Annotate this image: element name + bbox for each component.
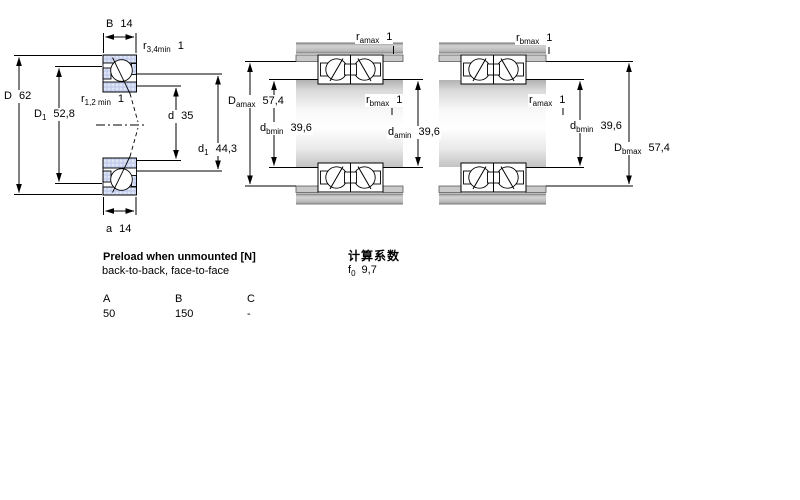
dim-label-damin: damin39,6 [387,126,441,139]
dim-label-D1: D152,8 [33,108,76,121]
f0-factor: f09,7 [347,264,378,277]
bearing-pair-bottom [461,163,526,192]
dim-label-rbmax-right: rbmax1 [515,32,553,45]
bearing-pair-bottom [318,163,383,192]
preload-subtitle: back-to-back, face-to-face [102,265,229,278]
calculation-factors-title: 计算系数 [348,250,400,263]
dim-label-B: B14 [105,18,134,31]
dim-label-ramax-right: ramax1 [528,94,566,107]
preload-col-header-a: A [103,293,110,306]
dim-label-Dbmax: Dbmax57,4 [613,142,671,155]
bearing-drawing-page: B14 r3,4min1 D62 D152,8 r1,2 min1 d35 d1… [0,0,800,500]
left-bearing-cross-section [96,55,144,195]
dim-label-r34min: r3,4min1 [142,40,185,53]
dim-label-rbmax-middle: rbmax1 [365,94,403,107]
dim-label-r12min: r1,2 min1 [80,93,125,106]
preload-col-header-c: C [247,293,255,306]
right-mounted-pair [439,43,546,204]
preload-title: Preload when unmounted [N] [103,251,256,264]
dim-label-dbmin-middle: dbmin39,6 [259,122,313,135]
dim-label-ramax-middle: ramax1 [355,31,393,44]
preload-value-a: 50 [103,308,115,321]
preload-value-c: - [247,308,251,321]
bearing-pair-top [318,55,383,84]
bearing-pair-top [461,55,526,84]
dim-label-d1: d144,3 [197,143,238,156]
preload-col-header-b: B [175,293,182,306]
preload-value-b: 150 [175,308,193,321]
dim-label-dbmin-right: dbmin39,6 [569,120,623,133]
dim-label-d: d35 [167,110,194,123]
dim-label-a: a14 [105,223,132,236]
dim-label-D: D62 [3,90,32,103]
dim-label-Damax: Damax57,4 [227,95,285,108]
